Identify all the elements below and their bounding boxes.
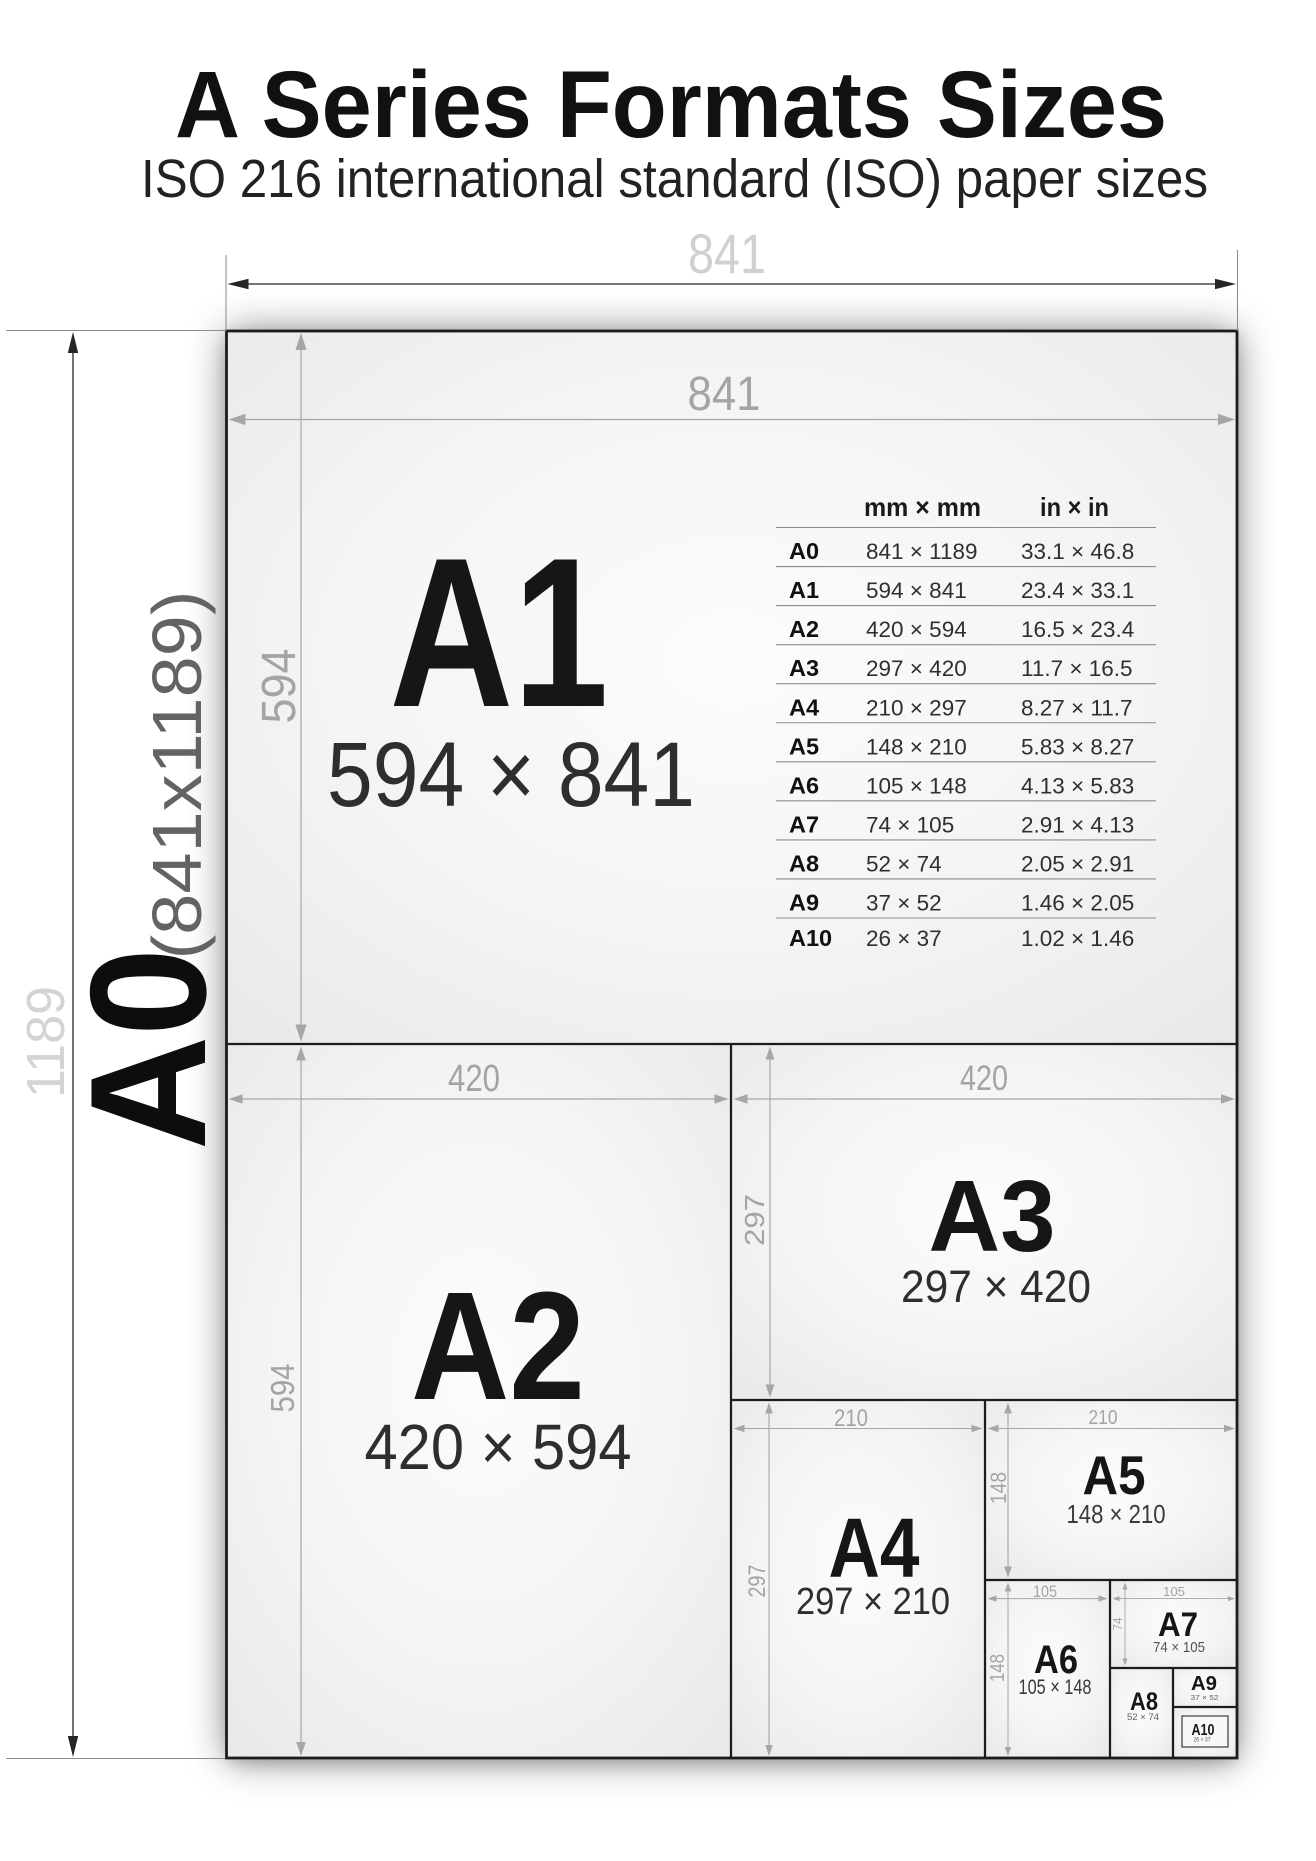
svg-text:420: 420 bbox=[960, 1059, 1008, 1098]
svg-text:52 × 74: 52 × 74 bbox=[866, 851, 942, 876]
svg-text:37 × 52: 37 × 52 bbox=[866, 891, 942, 916]
svg-text:11.7 × 16.5: 11.7 × 16.5 bbox=[1021, 656, 1133, 681]
svg-text:297: 297 bbox=[744, 1565, 771, 1598]
svg-text:1.02 × 1.46: 1.02 × 1.46 bbox=[1021, 926, 1134, 951]
svg-text:A2: A2 bbox=[411, 1260, 585, 1432]
svg-text:148: 148 bbox=[986, 1472, 1011, 1504]
svg-text:A3: A3 bbox=[789, 655, 819, 681]
svg-text:74: 74 bbox=[1110, 1618, 1125, 1631]
svg-text:A6: A6 bbox=[789, 772, 819, 798]
svg-text:841 × 1189: 841 × 1189 bbox=[866, 539, 978, 564]
svg-text:148: 148 bbox=[987, 1654, 1009, 1682]
svg-text:in × in: in × in bbox=[1040, 492, 1109, 522]
svg-text:A5: A5 bbox=[789, 733, 819, 759]
svg-text:26 × 37: 26 × 37 bbox=[1194, 1738, 1212, 1744]
svg-text:210: 210 bbox=[834, 1405, 868, 1432]
svg-text:8.27 × 11.7: 8.27 × 11.7 bbox=[1021, 695, 1133, 720]
svg-text:A0: A0 bbox=[789, 538, 819, 564]
svg-text:A9: A9 bbox=[789, 890, 819, 916]
svg-text:5.83 × 8.27: 5.83 × 8.27 bbox=[1021, 734, 1134, 759]
svg-text:ISO 216 international standard: ISO 216 international standard (ISO) pap… bbox=[141, 149, 1208, 209]
svg-text:105: 105 bbox=[1033, 1583, 1057, 1601]
svg-text:A Series Formats Sizes: A Series Formats Sizes bbox=[175, 52, 1167, 158]
svg-text:74 × 105: 74 × 105 bbox=[866, 812, 954, 837]
svg-text:420 × 594: 420 × 594 bbox=[866, 617, 967, 642]
svg-text:148 × 210: 148 × 210 bbox=[866, 734, 967, 759]
svg-text:297 × 420: 297 × 420 bbox=[901, 1261, 1091, 1312]
svg-text:210 × 297: 210 × 297 bbox=[866, 695, 967, 720]
svg-text:A0: A0 bbox=[56, 948, 240, 1150]
svg-text:A1: A1 bbox=[789, 577, 819, 603]
svg-text:A9: A9 bbox=[1191, 1673, 1217, 1695]
svg-text:210: 210 bbox=[1089, 1407, 1118, 1429]
svg-text:105 × 148: 105 × 148 bbox=[1019, 1676, 1092, 1699]
svg-text:A3: A3 bbox=[929, 1161, 1056, 1273]
svg-text:16.5 × 23.4: 16.5 × 23.4 bbox=[1021, 617, 1134, 642]
svg-text:23.4 × 33.1: 23.4 × 33.1 bbox=[1021, 578, 1134, 603]
svg-text:A2: A2 bbox=[789, 616, 819, 642]
svg-text:148 × 210: 148 × 210 bbox=[1067, 1499, 1166, 1529]
svg-text:A10: A10 bbox=[789, 925, 832, 951]
svg-text:(841x1189): (841x1189) bbox=[138, 591, 216, 960]
svg-text:2.05 × 2.91: 2.05 × 2.91 bbox=[1021, 851, 1134, 876]
svg-text:420: 420 bbox=[448, 1058, 500, 1100]
svg-text:1.46 × 2.05: 1.46 × 2.05 bbox=[1021, 891, 1134, 916]
svg-text:A10: A10 bbox=[1192, 1722, 1215, 1739]
svg-text:4.13 × 5.83: 4.13 × 5.83 bbox=[1021, 773, 1134, 798]
svg-text:A8: A8 bbox=[789, 850, 819, 876]
svg-text:A5: A5 bbox=[1083, 1444, 1146, 1506]
svg-text:A1: A1 bbox=[390, 514, 609, 752]
svg-text:297 × 420: 297 × 420 bbox=[866, 656, 967, 681]
svg-text:A4: A4 bbox=[789, 694, 819, 720]
svg-text:mm × mm: mm × mm bbox=[864, 492, 981, 522]
svg-text:74 × 105: 74 × 105 bbox=[1153, 1639, 1205, 1656]
svg-text:37 × 52: 37 × 52 bbox=[1191, 1693, 1219, 1702]
svg-text:594: 594 bbox=[253, 649, 306, 724]
svg-text:297: 297 bbox=[739, 1194, 770, 1246]
svg-text:A7: A7 bbox=[789, 811, 819, 837]
svg-text:841: 841 bbox=[688, 368, 761, 421]
svg-text:594: 594 bbox=[264, 1364, 301, 1413]
svg-text:841: 841 bbox=[688, 222, 766, 285]
svg-text:52 × 74: 52 × 74 bbox=[1127, 1712, 1159, 1723]
svg-text:420 × 594: 420 × 594 bbox=[365, 1411, 632, 1483]
svg-text:594 × 841: 594 × 841 bbox=[866, 578, 967, 603]
svg-text:594 × 841: 594 × 841 bbox=[327, 724, 695, 826]
svg-text:2.91 × 4.13: 2.91 × 4.13 bbox=[1021, 812, 1134, 837]
svg-text:26 × 37: 26 × 37 bbox=[866, 926, 942, 951]
svg-text:297 × 210: 297 × 210 bbox=[796, 1581, 950, 1623]
svg-text:105 × 148: 105 × 148 bbox=[866, 773, 967, 798]
svg-text:33.1 × 46.8: 33.1 × 46.8 bbox=[1021, 539, 1134, 564]
svg-text:105: 105 bbox=[1163, 1584, 1185, 1599]
